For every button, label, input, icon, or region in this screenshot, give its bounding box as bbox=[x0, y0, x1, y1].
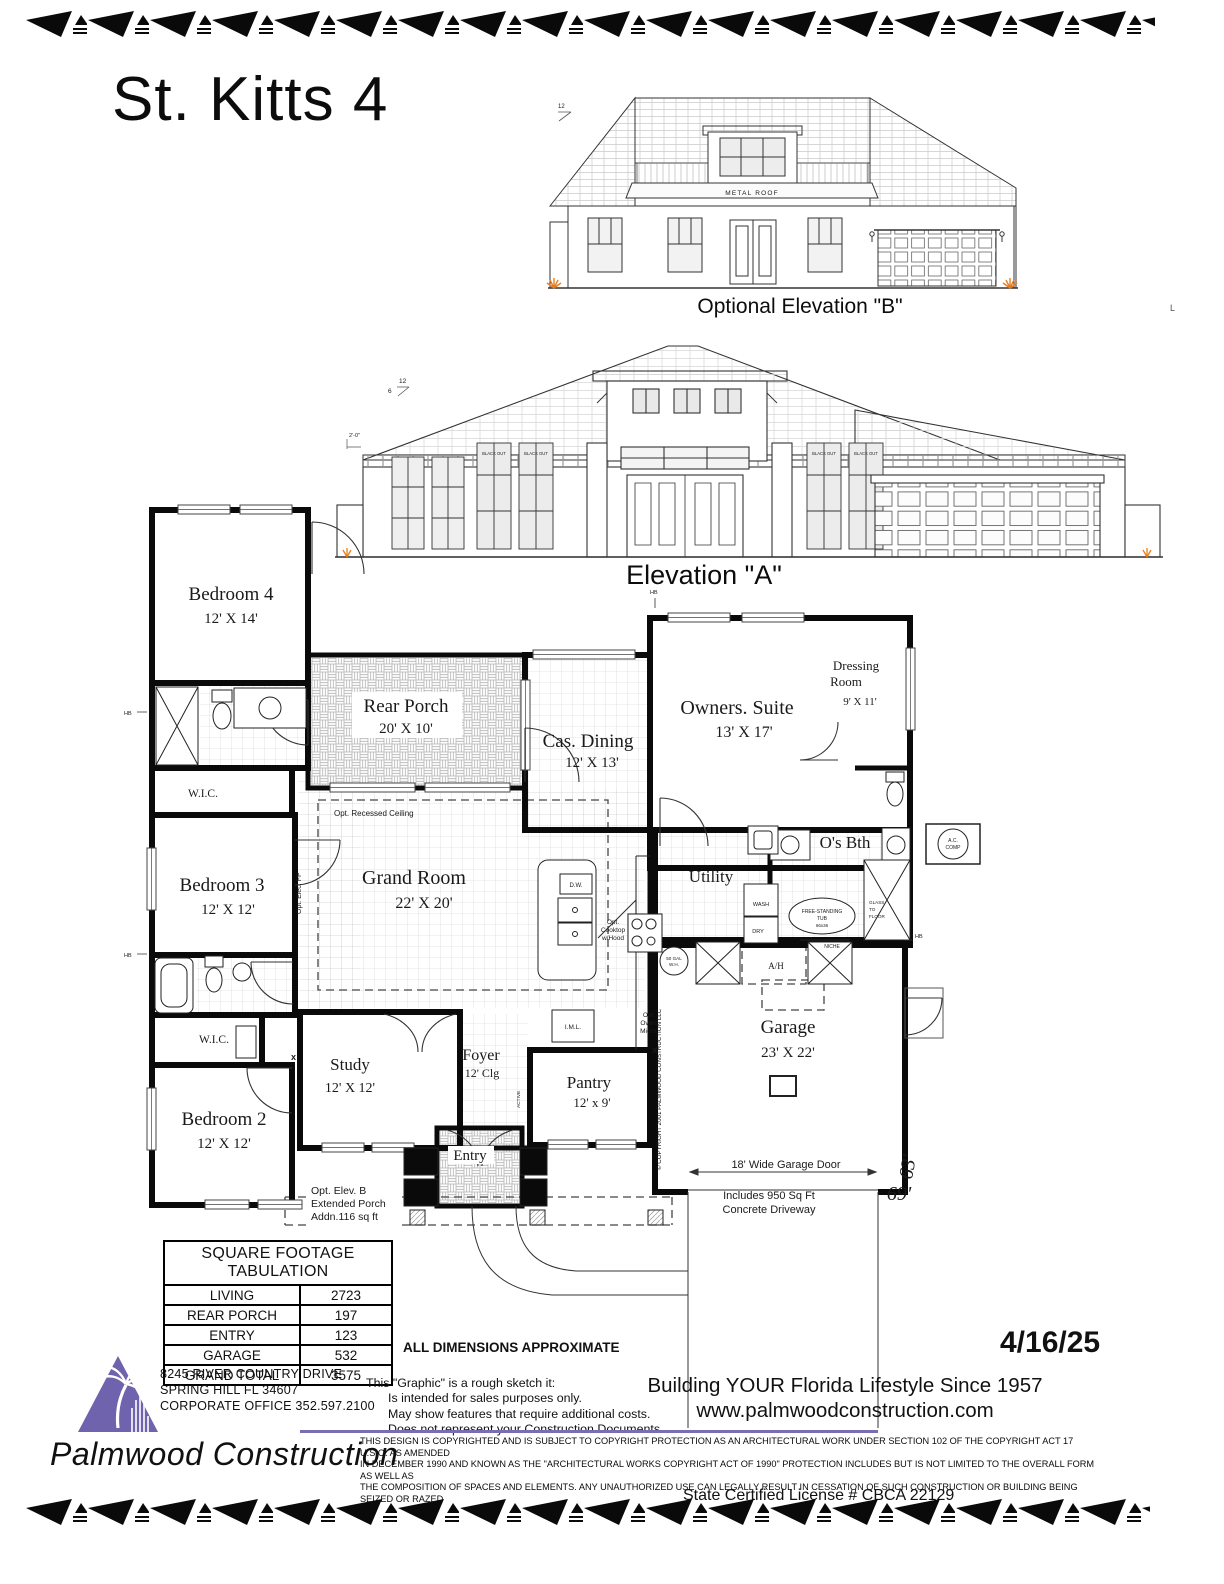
margin-mark: L bbox=[1170, 303, 1175, 313]
room-owners-suite: Owners. Suite bbox=[680, 697, 793, 719]
ann-iml: I.M.L. bbox=[565, 1024, 581, 1031]
company-name: Palmwood Construction bbox=[50, 1436, 398, 1473]
svg-text:HB: HB bbox=[124, 711, 132, 717]
svg-text:66x36: 66x36 bbox=[816, 923, 829, 928]
room-utility: Utility bbox=[689, 867, 734, 886]
address-block: 8245 RIVER COUNTRY DRIVE SPRING HILL FL … bbox=[160, 1366, 375, 1414]
svg-text:12' X 14': 12' X 14' bbox=[204, 611, 258, 627]
ann-wash: WASH bbox=[753, 902, 769, 908]
svg-text:Addn.116 sq ft: Addn.116 sq ft bbox=[311, 1211, 378, 1223]
table-row: GARAGE532 bbox=[164, 1345, 392, 1365]
svg-text:12' X 12': 12' X 12' bbox=[197, 1136, 251, 1152]
svg-text:W.H.: W.H. bbox=[669, 962, 679, 967]
table-row: ENTRY123 bbox=[164, 1325, 392, 1345]
room-bedroom3: Bedroom 3 bbox=[180, 875, 265, 896]
ann-active: ACTIVE bbox=[516, 1091, 522, 1108]
room-entry: Entry bbox=[453, 1148, 487, 1164]
svg-text:Includes 950 Sq Ft: Includes 950 Sq Ft bbox=[723, 1190, 815, 1202]
room-garage: Garage bbox=[761, 1017, 816, 1038]
plan-sheet: St. Kitts 4 bbox=[0, 0, 1224, 1584]
dim-63: 63' bbox=[895, 1152, 921, 1180]
svg-text:Opt.: Opt. bbox=[643, 1012, 655, 1019]
svg-text:13' X 17': 13' X 17' bbox=[715, 724, 772, 741]
room-bedroom4: Bedroom 4 bbox=[189, 584, 274, 605]
pitch-rise-a: 12 bbox=[399, 378, 407, 385]
sqft-table: SQUARE FOOTAGE TABULATION LIVING2723 REA… bbox=[163, 1240, 393, 1386]
svg-text:Opt.: Opt. bbox=[607, 919, 619, 926]
svg-text:HB: HB bbox=[650, 590, 658, 596]
svg-text:12' X 12': 12' X 12' bbox=[201, 902, 255, 918]
svg-text:x: x bbox=[652, 1045, 657, 1055]
room-rear-porch: Rear Porch bbox=[364, 696, 449, 717]
svg-text:FREE-STANDING: FREE-STANDING bbox=[802, 909, 843, 915]
room-foyer: Foyer bbox=[462, 1047, 500, 1064]
metal-roof-label: METAL ROOF bbox=[725, 190, 779, 197]
svg-text:HB: HB bbox=[915, 934, 923, 940]
svg-text:Opt. Elev. B: Opt. Elev. B bbox=[311, 1185, 366, 1197]
offset-note: 2'-0" bbox=[349, 433, 360, 439]
svg-text:HB: HB bbox=[124, 953, 132, 959]
svg-text:Concrete Driveway: Concrete Driveway bbox=[723, 1204, 816, 1216]
svg-text:TO: TO bbox=[869, 907, 876, 912]
top-border-pattern bbox=[25, 8, 1155, 42]
svg-text:22' X 20': 22' X 20' bbox=[395, 895, 452, 912]
svg-text:BLACK OUT: BLACK OUT bbox=[524, 451, 548, 456]
ann-elec-fp: Opt. Elec. FP bbox=[296, 872, 303, 914]
svg-text:12' X 13': 12' X 13' bbox=[565, 755, 619, 771]
pitch-run-a: 6 bbox=[388, 388, 392, 395]
bottom-border-pattern bbox=[25, 1496, 1150, 1530]
ah-label: A/H bbox=[768, 961, 784, 971]
ann-copyright-vert: © COPYRIGHT 2001 PALMWOOD CONSTRUCTION L… bbox=[656, 1008, 663, 1170]
ann-recessed: Opt. Recessed Ceiling bbox=[334, 809, 414, 818]
sketch-disclaimer: This "Graphic" is a rough sketch it: Is … bbox=[366, 1376, 663, 1438]
svg-text:FLOOR: FLOOR bbox=[869, 914, 886, 919]
svg-text:BLACK OUT: BLACK OUT bbox=[812, 451, 836, 456]
svg-text:GLASS: GLASS bbox=[869, 900, 884, 905]
svg-text:w/Hood: w/Hood bbox=[601, 935, 624, 942]
sqft-title: SQUARE FOOTAGE TABULATION bbox=[164, 1241, 392, 1285]
wic-lower: W.I.C. bbox=[199, 1034, 229, 1046]
website-text: www.palmwoodconstruction.com bbox=[645, 1399, 1045, 1423]
svg-text:TUB: TUB bbox=[817, 916, 828, 922]
svg-text:BLACK OUT: BLACK OUT bbox=[854, 451, 878, 456]
pitch-label-b: 12 bbox=[558, 104, 565, 110]
dim-69: 69' bbox=[887, 1183, 912, 1205]
garage-stoop bbox=[905, 988, 943, 1038]
wic-upper: W.I.C. bbox=[188, 788, 218, 800]
elevation-b-caption: Optional Elevation "B" bbox=[650, 295, 950, 319]
svg-text:Room: Room bbox=[830, 674, 862, 689]
svg-text:50 GAL: 50 GAL bbox=[666, 956, 682, 961]
page-title: St. Kitts 4 bbox=[112, 64, 388, 135]
svg-text:BLACK OUT: BLACK OUT bbox=[482, 451, 506, 456]
room-pantry: Pantry bbox=[567, 1073, 612, 1092]
table-row: REAR PORCH197 bbox=[164, 1305, 392, 1325]
ann-dry: DRY bbox=[752, 929, 764, 935]
svg-text:Cooktop: Cooktop bbox=[601, 927, 626, 934]
svg-text:Extended Porch: Extended Porch bbox=[311, 1198, 386, 1210]
table-row: LIVING2723 bbox=[164, 1285, 392, 1305]
svg-text:A.C.: A.C. bbox=[948, 838, 958, 844]
ann-garage-door: 18' Wide Garage Door bbox=[731, 1159, 840, 1171]
tagline: Building YOUR Florida Lifestyle Since 19… bbox=[645, 1374, 1045, 1398]
plan-date: 4/16/25 bbox=[1000, 1326, 1100, 1360]
svg-text:12' Clg: 12' Clg bbox=[465, 1066, 500, 1080]
elevation-b-house bbox=[548, 98, 1018, 288]
all-dims-note: ALL DIMENSIONS APPROXIMATE bbox=[403, 1340, 620, 1355]
room-obth: O's Bth bbox=[820, 833, 871, 852]
room-bedroom2: Bedroom 2 bbox=[182, 1109, 267, 1130]
room-grand: Grand Room bbox=[362, 867, 466, 889]
palmwood-logo bbox=[74, 1354, 162, 1436]
room-cas-dining: Cas. Dining bbox=[543, 731, 634, 752]
ann-dw: D.W. bbox=[570, 883, 583, 889]
purple-rule bbox=[300, 1430, 878, 1433]
elevation-b-drawing: METAL ROOF 12 bbox=[540, 82, 1025, 300]
svg-text:COMP: COMP bbox=[946, 845, 962, 851]
svg-text:20' X 10': 20' X 10' bbox=[379, 721, 433, 737]
room-dressing: Dressing bbox=[833, 658, 880, 673]
room-study: Study bbox=[330, 1055, 370, 1074]
svg-text:x: x bbox=[291, 1052, 296, 1062]
ann-niche: NICHE bbox=[824, 944, 840, 950]
svg-text:23' X 22': 23' X 22' bbox=[761, 1045, 815, 1061]
svg-text:12' x 9': 12' x 9' bbox=[573, 1095, 610, 1110]
svg-text:9' X 11': 9' X 11' bbox=[843, 696, 877, 708]
svg-text:12' X 12': 12' X 12' bbox=[325, 1081, 375, 1096]
